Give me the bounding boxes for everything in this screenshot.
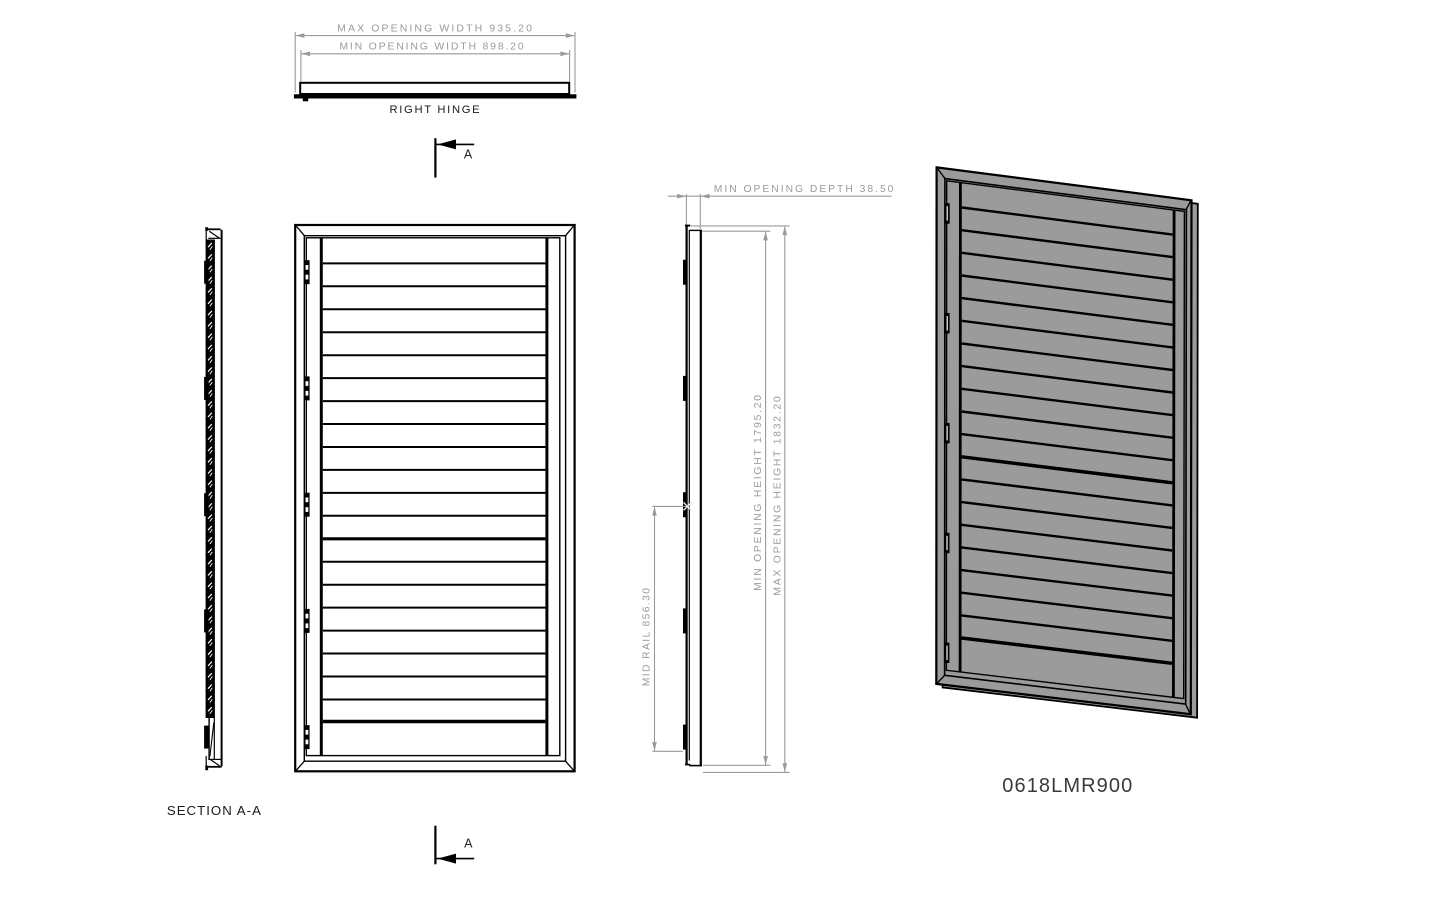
svg-text:MIN OPENING WIDTH 898.20: MIN OPENING WIDTH 898.20 bbox=[339, 41, 525, 53]
svg-text:SECTION A-A: SECTION A-A bbox=[167, 803, 262, 818]
svg-text:A: A bbox=[464, 837, 473, 851]
svg-text:MIN OPENING HEIGHT 1795.20: MIN OPENING HEIGHT 1795.20 bbox=[753, 393, 764, 591]
svg-text:MIN OPENING DEPTH 38.50: MIN OPENING DEPTH 38.50 bbox=[714, 184, 896, 195]
svg-text:A: A bbox=[464, 148, 473, 162]
svg-text:RIGHT HINGE: RIGHT HINGE bbox=[389, 104, 481, 116]
svg-text:0618LMR900: 0618LMR900 bbox=[1002, 775, 1133, 797]
svg-text:MAX OPENING WIDTH 935.20: MAX OPENING WIDTH 935.20 bbox=[337, 23, 534, 35]
svg-text:MAX OPENING HEIGHT 1832.20: MAX OPENING HEIGHT 1832.20 bbox=[772, 394, 783, 595]
svg-text:MID RAIL 856.30: MID RAIL 856.30 bbox=[642, 587, 653, 687]
